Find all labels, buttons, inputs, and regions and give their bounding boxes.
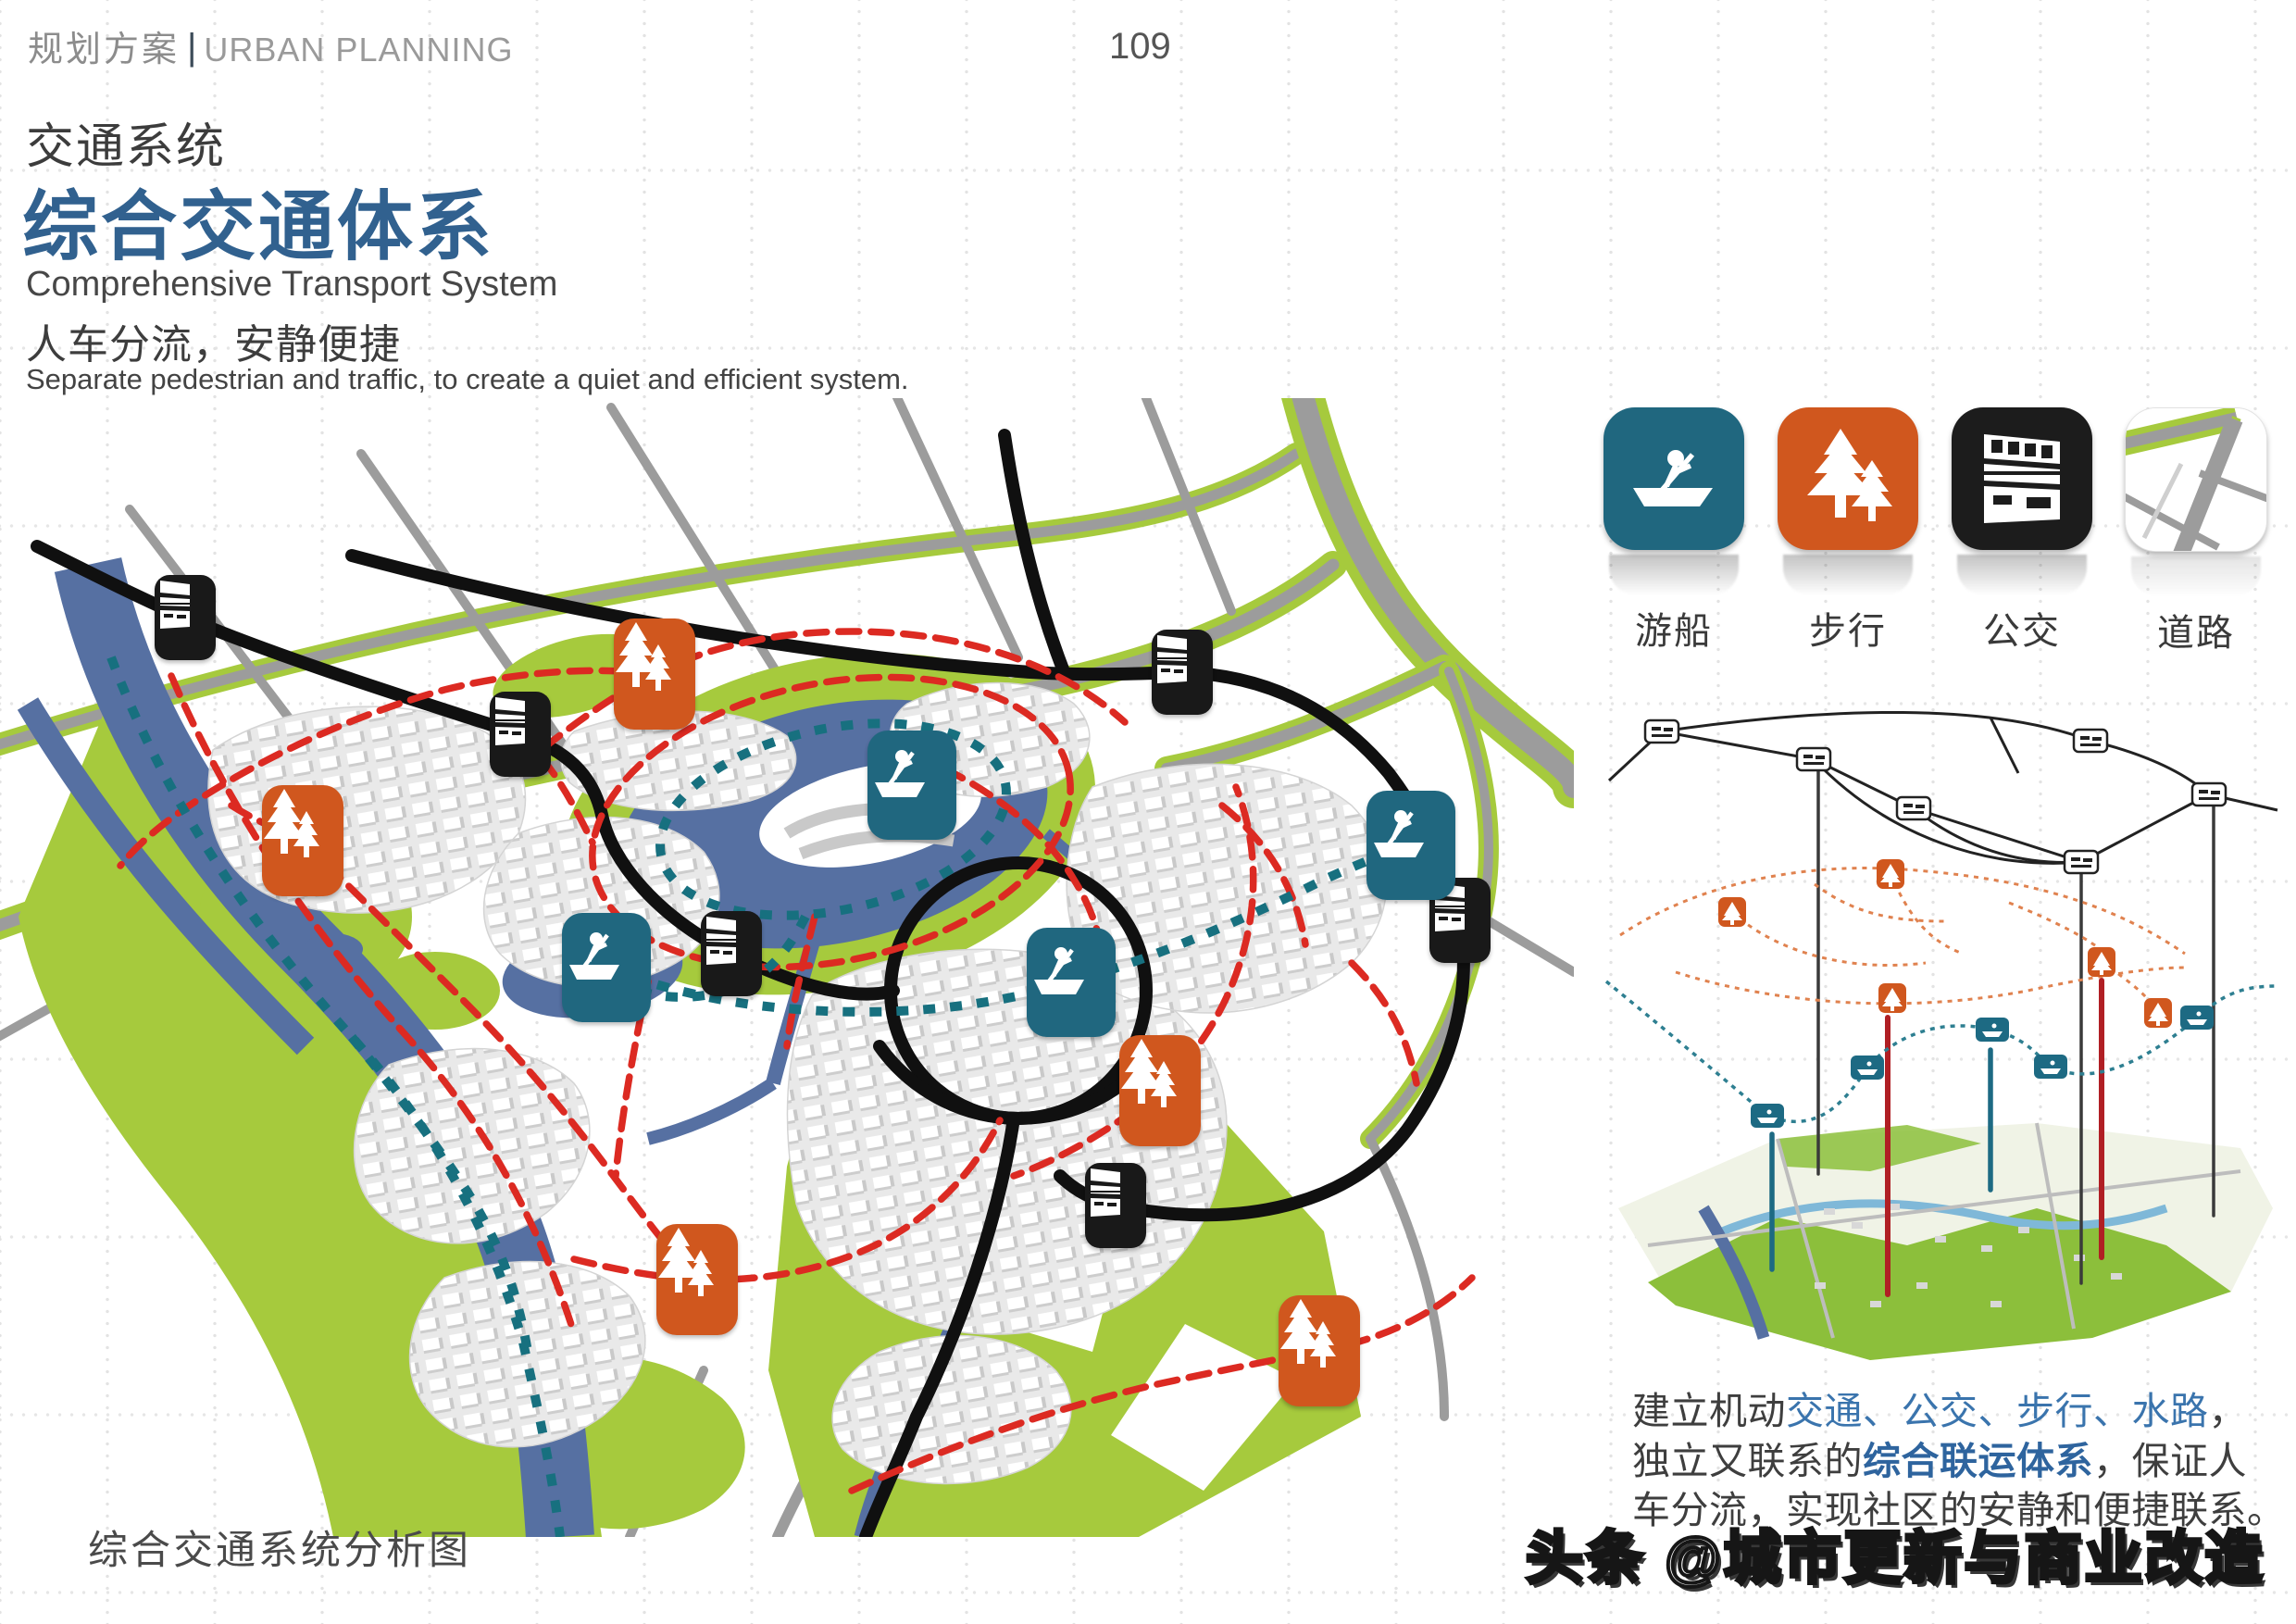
legend-label: 游船: [1635, 601, 1713, 655]
bus-stop-icon: [1152, 630, 1213, 715]
legend-item-walk: 步行: [1776, 407, 1920, 656]
para-seg: 建立机动: [1632, 1390, 1786, 1432]
legend-item-boat: 游船: [1602, 407, 1746, 656]
bus-stop-icon: [155, 575, 216, 660]
page-title-en: Comprehensive Transport System: [26, 265, 557, 305]
map-caption: 综合交通系统分析图: [88, 1518, 471, 1576]
legend-label: 公交: [1983, 601, 2061, 655]
para-seg-highlight-bold: 综合联运体系: [1863, 1440, 2093, 1482]
boat-route-icon: [562, 913, 651, 1022]
boat-route-icon: [1366, 791, 1455, 900]
para-seg-highlight: 交通、公交、步行、水路: [1786, 1390, 2209, 1432]
header-title-en: URBAN PLANNING: [204, 31, 513, 69]
legend-item-road: 道路: [2124, 407, 2268, 656]
transport-analysis-map: [0, 398, 1574, 1537]
legend-reflection: [1783, 555, 1913, 595]
walking-park-icon: [1119, 1035, 1201, 1146]
road-map-icon: [2125, 407, 2267, 552]
walking-park-icon: [656, 1224, 738, 1335]
legend-reflection: [1609, 555, 1739, 595]
walking-park-icon: [1279, 1295, 1360, 1406]
para-seg: ，: [2209, 1390, 2248, 1432]
legend-label: 步行: [1809, 601, 1887, 655]
bus-icon: [1952, 407, 2092, 550]
walking-park-icon: [614, 618, 695, 730]
page-root: 规划方案 | URBAN PLANNING 109 交通系统 综合交通体系 Co…: [0, 0, 2296, 1624]
legend: 游船 步行 公交 道路: [1602, 407, 2277, 656]
para-seg: 独立又联系的: [1632, 1440, 1863, 1482]
page-title: 综合交通体系: [22, 165, 494, 275]
subtitle-zh: 人车分流，安静便捷: [26, 311, 401, 370]
subtitle-en: Separate pedestrian and traffic, to crea…: [26, 363, 909, 396]
pine-trees-icon: [1778, 407, 1918, 550]
header: 规划方案 | URBAN PLANNING: [28, 20, 513, 71]
header-divider: |: [187, 27, 196, 69]
bus-stop-icon: [490, 692, 551, 777]
page-number: 109: [1109, 26, 1171, 68]
boat-route-icon: [1027, 928, 1116, 1037]
legend-reflection: [1957, 555, 2087, 595]
layers-illustration: [1592, 690, 2296, 1380]
layer-road-network: [1609, 712, 2277, 863]
legend-reflection: [2131, 556, 2261, 597]
legend-item-bus: 公交: [1950, 407, 2094, 656]
boat-icon: [1603, 407, 1744, 550]
layer-site-plan: [1618, 1123, 2273, 1360]
watermark: 头条 @城市更新与商业改造: [1526, 1511, 2265, 1594]
legend-label: 道路: [2157, 603, 2235, 656]
bus-stop-icon: [1085, 1163, 1146, 1248]
layer-boat-markers: [1751, 1006, 2214, 1128]
boat-route-icon: [867, 731, 956, 840]
walking-park-icon: [262, 785, 343, 896]
bus-stop-icon: [701, 911, 762, 996]
header-title-zh: 规划方案: [28, 20, 180, 71]
para-seg: ，保证人: [2093, 1440, 2247, 1482]
layered-system-diagram: [1592, 690, 2296, 1380]
